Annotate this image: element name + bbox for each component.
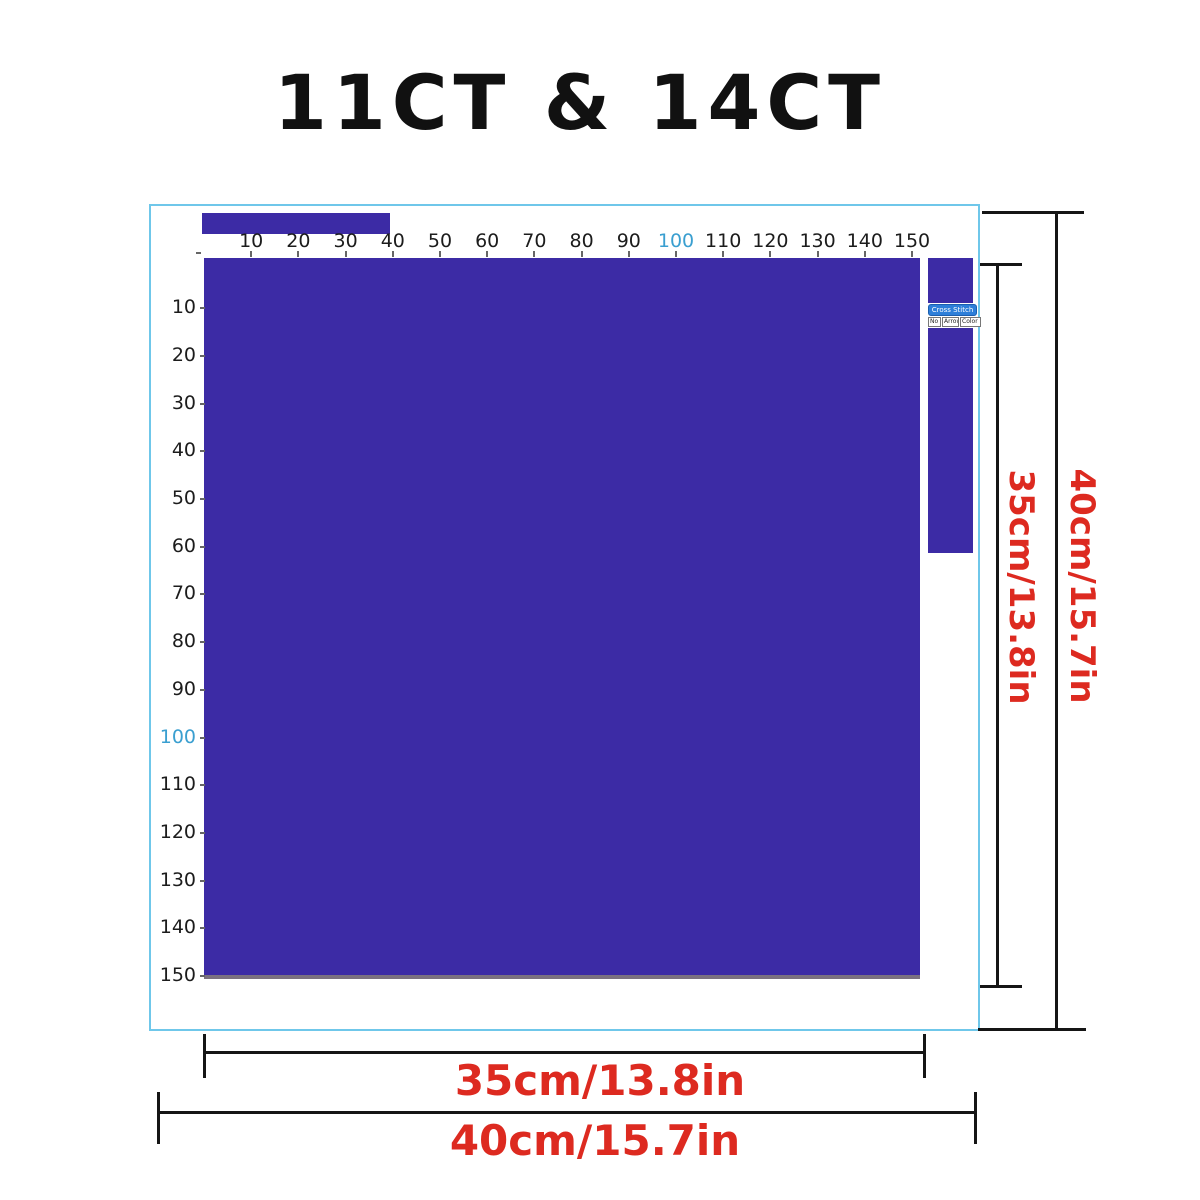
ruler-left-label: 100 bbox=[140, 726, 196, 748]
ruler-left-label: 80 bbox=[140, 630, 196, 652]
dimension-line-right-inner bbox=[996, 263, 999, 988]
ruler-left-tick bbox=[200, 546, 205, 548]
ruler-top-tick bbox=[628, 251, 630, 257]
ruler-left-label: 20 bbox=[140, 344, 196, 366]
ruler-top-label: 20 bbox=[273, 230, 323, 252]
product-dimension-diagram: 11CT & 14CT Cross Stitch NoArrowColor 10… bbox=[0, 0, 1200, 1200]
ruler-top-tick bbox=[911, 251, 913, 257]
ruler-top-label: 120 bbox=[745, 230, 795, 252]
ruler-top-label: 90 bbox=[604, 230, 654, 252]
ruler-left-tick bbox=[200, 450, 205, 452]
ruler-left-tick bbox=[200, 927, 205, 929]
dimension-tick-bottom-inner-right bbox=[923, 1034, 926, 1078]
dimension-cap-right-outer-top bbox=[982, 211, 1084, 214]
ruler-left-tick bbox=[200, 498, 205, 500]
ruler-left-label: 10 bbox=[140, 296, 196, 318]
dimension-tick-bottom-outer-left bbox=[157, 1092, 160, 1144]
ruler-top-label: 30 bbox=[321, 230, 371, 252]
dimension-cap-right-inner-bottom bbox=[980, 985, 1022, 988]
dimension-cap-right-inner-top bbox=[980, 263, 1022, 266]
ruler-left-label: 60 bbox=[140, 535, 196, 557]
dimension-tick-bottom-outer-right bbox=[974, 1092, 977, 1144]
dimension-label-right-inner: 35cm/13.8in bbox=[1001, 469, 1041, 704]
cross-stitch-widget-buttons: NoArrowColor bbox=[928, 317, 977, 327]
ruler-top-label: 40 bbox=[368, 230, 418, 252]
ruler-left-label: 150 bbox=[140, 964, 196, 986]
dimension-cap-right-outer-bottom bbox=[978, 1028, 1086, 1031]
dimension-label-bottom-inner: 35cm/13.8in bbox=[300, 1056, 900, 1105]
ruler-top-label: 10 bbox=[226, 230, 276, 252]
ruler-top-label: 130 bbox=[793, 230, 843, 252]
ruler-top-label: 50 bbox=[415, 230, 465, 252]
ruler-top-label: 100 bbox=[651, 230, 701, 252]
ruler-top-tick bbox=[722, 251, 724, 257]
ruler-left-tick bbox=[200, 355, 205, 357]
dimension-label-bottom-outer: 40cm/15.7in bbox=[295, 1116, 895, 1165]
ruler-top-tick bbox=[675, 251, 677, 257]
ruler-top-label: 80 bbox=[557, 230, 607, 252]
ruler-left-tick bbox=[200, 737, 205, 739]
ruler-top-label: 70 bbox=[509, 230, 559, 252]
cross-stitch-widget-title: Cross Stitch bbox=[928, 304, 977, 316]
dimension-line-right-outer bbox=[1055, 211, 1058, 1031]
ruler-top-tick bbox=[439, 251, 441, 257]
ruler-left-tick bbox=[200, 975, 205, 977]
ruler-left-label: 70 bbox=[140, 582, 196, 604]
ruler-top-tick bbox=[533, 251, 535, 257]
ruler-left-tick bbox=[200, 403, 205, 405]
ruler-left-label: 130 bbox=[140, 869, 196, 891]
widget-button-no[interactable]: No bbox=[928, 317, 941, 327]
ruler-top-label: 140 bbox=[840, 230, 890, 252]
ruler-left-tick bbox=[200, 307, 205, 309]
ruler-left-label: 50 bbox=[140, 487, 196, 509]
ruler-left-label: 30 bbox=[140, 392, 196, 414]
ruler-top-tick bbox=[864, 251, 866, 257]
ruler-top-label: 110 bbox=[698, 230, 748, 252]
widget-button-color[interactable]: Color bbox=[960, 317, 981, 327]
ruler-left-label: 140 bbox=[140, 916, 196, 938]
cross-stitch-widget: Cross Stitch NoArrowColor bbox=[927, 303, 978, 328]
widget-button-arrow[interactable]: Arrow bbox=[942, 317, 959, 327]
ruler-left-tick bbox=[200, 593, 205, 595]
ruler-left-tick bbox=[200, 880, 205, 882]
ruler-top-tick bbox=[486, 251, 488, 257]
ruler-left-tick bbox=[200, 689, 205, 691]
ruler-left-label: 40 bbox=[140, 439, 196, 461]
ruler-left-tick bbox=[200, 832, 205, 834]
ruler-top-tick bbox=[392, 251, 394, 257]
ruler-left-label: 110 bbox=[140, 773, 196, 795]
ruler-top-tick bbox=[345, 251, 347, 257]
ruler-top-tick bbox=[297, 251, 299, 257]
ruler-left-label: 90 bbox=[140, 678, 196, 700]
fabric-square bbox=[204, 258, 920, 979]
ruler-top-tick bbox=[769, 251, 771, 257]
ruler-top-label: 150 bbox=[887, 230, 937, 252]
dimension-label-right-outer: 40cm/15.7in bbox=[1062, 468, 1102, 703]
ruler-left-label: 120 bbox=[140, 821, 196, 843]
ruler-origin-tick bbox=[196, 252, 201, 254]
ruler-top-tick bbox=[817, 251, 819, 257]
dimension-line-bottom-outer bbox=[158, 1111, 976, 1114]
ruler-top-label: 60 bbox=[462, 230, 512, 252]
ruler-left-tick bbox=[200, 784, 205, 786]
dimension-line-bottom-inner bbox=[204, 1051, 926, 1054]
ruler-left-tick bbox=[200, 641, 205, 643]
dimension-tick-bottom-inner-left bbox=[203, 1034, 206, 1078]
page-title: 11CT & 14CT bbox=[0, 58, 1160, 147]
ruler-top-tick bbox=[581, 251, 583, 257]
ruler-top-tick bbox=[250, 251, 252, 257]
